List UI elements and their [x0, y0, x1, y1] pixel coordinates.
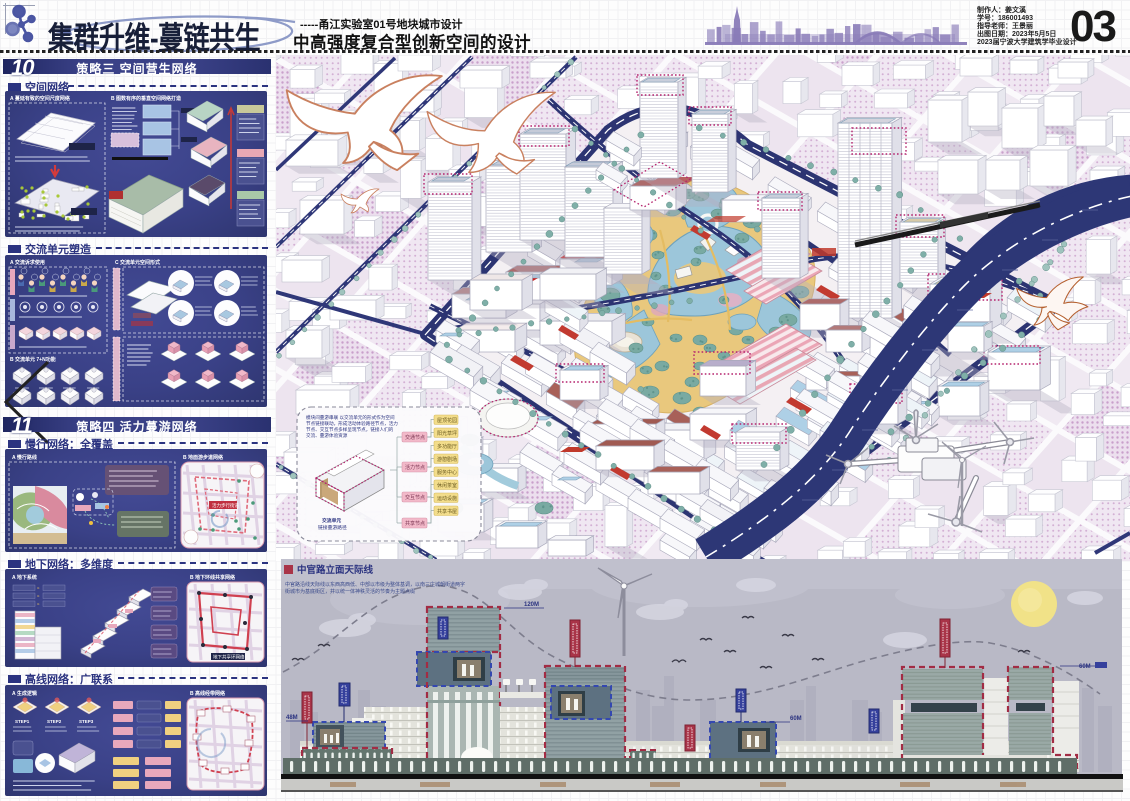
svg-text:A 交流诉求使用: A 交流诉求使用 — [10, 259, 45, 266]
svg-text:链接蔓游路径: 链接蔓游路径 — [318, 524, 347, 531]
svg-text:C 交流单元空间形式: C 交流单元空间形式 — [115, 259, 160, 266]
svg-text:节点、交互节点多样呈现节点，链接人们的: 节点、交互节点多样呈现节点，链接人们的 — [306, 426, 394, 433]
svg-text:运动设施: 运动设施 — [437, 495, 457, 502]
svg-text:A 生成逻辑: A 生成逻辑 — [12, 690, 37, 697]
svg-text:B 地下环线共享网络: B 地下环线共享网络 — [190, 574, 235, 581]
svg-text:»: » — [37, 586, 40, 591]
svg-text:交流、蔓游体验资源: 交流、蔓游体验资源 — [306, 432, 348, 439]
svg-text:交互节点: 交互节点 — [405, 494, 425, 501]
svg-text:STEP3: STEP3 — [79, 719, 94, 724]
svg-text:»: » — [37, 594, 40, 599]
svg-text:服务中心: 服务中心 — [437, 469, 457, 476]
svg-text:120M: 120M — [524, 602, 539, 608]
svg-text:模块间蔓游串联 以交流单元的形式作为空间: 模块间蔓游串联 以交流单元的形式作为空间 — [306, 414, 395, 421]
svg-text:共享节点: 共享节点 — [405, 520, 425, 527]
svg-text:A 蔓延有致的空间尺度网络: A 蔓延有致的空间尺度网络 — [10, 95, 70, 102]
svg-text:STEP2: STEP2 — [47, 719, 62, 724]
svg-text:游憩剧场: 游憩剧场 — [437, 456, 457, 463]
svg-text:48M: 48M — [286, 715, 298, 721]
svg-text:阳光草坪: 阳光草坪 — [437, 430, 457, 437]
svg-text:休闲茶室: 休闲茶室 — [437, 482, 457, 489]
svg-text:屋顶花园: 屋顶花园 — [437, 417, 457, 424]
svg-text:共享书屋: 共享书屋 — [437, 508, 457, 515]
svg-text:中官路立面天际线: 中官路立面天际线 — [297, 564, 374, 576]
svg-text:多功能厅: 多功能厅 — [437, 443, 457, 450]
svg-text:街城市为基底街区，并以统一体神秩灵活的节奏为主题点缀: 街城市为基底街区，并以统一体神秩灵活的节奏为主题点缀 — [285, 588, 415, 595]
svg-text:B 地面游步道网络: B 地面游步道网络 — [183, 454, 223, 461]
svg-text:60M: 60M — [1079, 664, 1091, 670]
svg-text:中官路沿线天际线以东西高西低、中部以市级为整体基调，以南三庄: 中官路沿线天际线以东西高西低、中部以市级为整体基调，以南三庄城朝街道两字 — [285, 581, 465, 588]
svg-text:地下共享环网络: 地下共享环网络 — [213, 654, 245, 661]
svg-text:A 地下系统: A 地下系统 — [12, 574, 37, 581]
svg-text:60M: 60M — [790, 716, 802, 722]
svg-text:B 高线经带网络: B 高线经带网络 — [190, 690, 225, 697]
svg-text:交通节点: 交通节点 — [405, 434, 425, 441]
svg-text:STEP1: STEP1 — [15, 719, 30, 724]
svg-text:活力步行街道: 活力步行街道 — [212, 502, 239, 509]
svg-text:»: » — [37, 602, 40, 607]
svg-text:活力节点: 活力节点 — [405, 464, 425, 471]
svg-text:A 慢行路线: A 慢行路线 — [12, 454, 37, 461]
svg-text:交流单元: 交流单元 — [322, 517, 341, 524]
svg-text:节点链接联动，形成活动体验路径节点，活力: 节点链接联动，形成活动体验路径节点，活力 — [306, 420, 398, 427]
svg-text:B 图数有序的垂直空间网络打造: B 图数有序的垂直空间网络打造 — [111, 95, 182, 102]
